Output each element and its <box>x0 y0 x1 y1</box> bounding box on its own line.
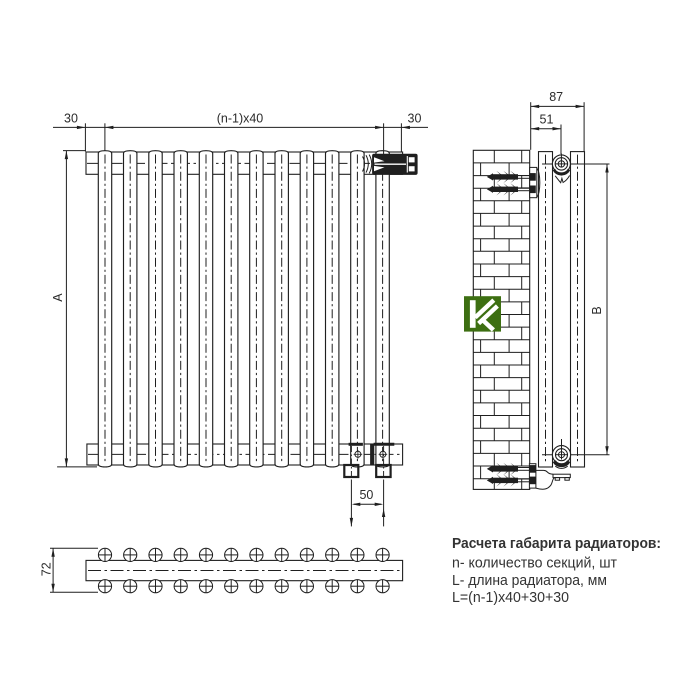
svg-text:Расчета габарита радиаторов:: Расчета габарита радиаторов: <box>452 535 661 552</box>
svg-text:50: 50 <box>359 488 373 502</box>
svg-text:51: 51 <box>540 112 554 126</box>
svg-text:72: 72 <box>40 562 54 576</box>
svg-text:A: A <box>51 293 65 302</box>
svg-text:87: 87 <box>549 90 563 104</box>
svg-text:(n-1)x40: (n-1)x40 <box>217 111 264 125</box>
svg-text:30: 30 <box>408 111 422 125</box>
svg-text:30: 30 <box>64 111 78 125</box>
svg-text:B: B <box>590 306 604 314</box>
svg-text:L=(n-1)x40+30+30: L=(n-1)x40+30+30 <box>452 589 569 606</box>
svg-text:L- длина радиатора, мм: L- длина радиатора, мм <box>452 572 607 589</box>
svg-text:n- количество секций, шт: n- количество секций, шт <box>452 554 617 571</box>
